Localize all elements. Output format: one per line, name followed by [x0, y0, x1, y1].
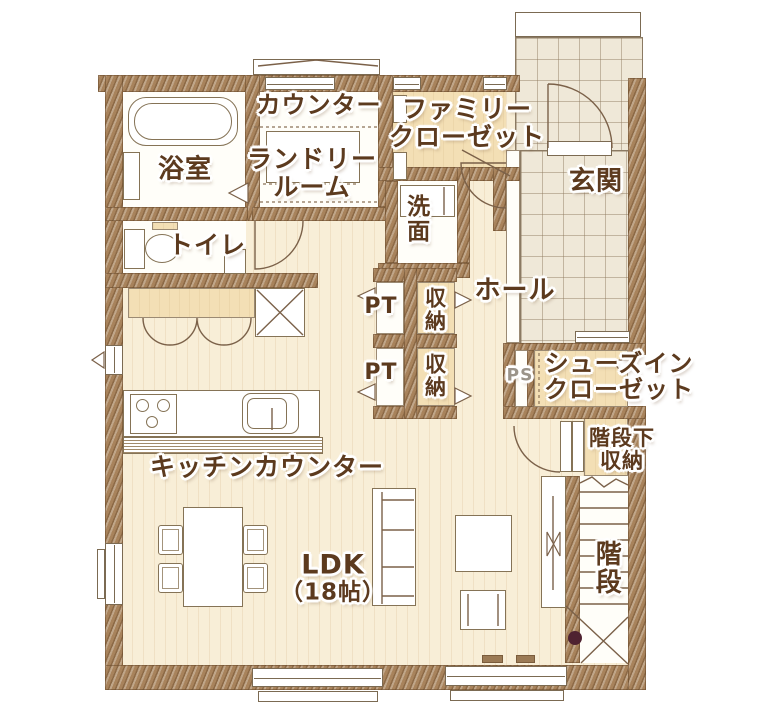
under-stairs-door-leaf-1 [560, 421, 572, 472]
window-outer-frame-top [253, 59, 380, 75]
room-label-ldk: LDK （18帖） [280, 551, 386, 606]
kitchen-cabinet-strip [128, 288, 255, 318]
window-left-ldk [105, 543, 123, 605]
wall-entrance-stub [493, 167, 506, 231]
under-stairs-line-2: 収納 [589, 450, 655, 473]
wall-storage-block-spine [404, 268, 417, 419]
bathtub-inner [134, 103, 232, 140]
wall-stairs-left [565, 476, 580, 663]
ldk-line-1: LDK [280, 551, 386, 581]
window-top-closet-left [393, 77, 421, 90]
room-label-family-closet: ファミリー クローゼット [389, 96, 545, 151]
ottoman [460, 590, 506, 630]
toilet-shelf [152, 222, 178, 230]
room-label-shoe-closet: シューズイン クローゼット [544, 351, 694, 404]
window-bottom-dining [252, 668, 383, 687]
shoe-closet-entrance-door [575, 331, 630, 343]
room-label-hall: ホール [474, 277, 555, 306]
room-label-entrance: 玄関 [569, 168, 623, 197]
room-label-bathroom: 浴室 [158, 156, 212, 185]
tv-board [541, 476, 566, 608]
refrigerator-space [255, 288, 305, 337]
family-closet-line-1: ファミリー [389, 96, 545, 124]
bath-counter [123, 152, 140, 200]
room-label-pipe-space: PS [507, 367, 534, 386]
wall-toilet-bottom [105, 273, 318, 288]
window-top-laundry [265, 77, 335, 90]
wall-right-upper [628, 78, 646, 345]
wall-washroom-left [385, 181, 398, 263]
room-label-pantry-lower: PT [364, 361, 397, 385]
laundry-line-2: ルーム [247, 173, 377, 201]
room-label-laundry: ランドリー ルーム [247, 146, 377, 201]
room-label-stairs: 階段 [592, 540, 621, 596]
room-label-pantry-upper: PT [364, 295, 397, 319]
room-label-counter: カウンター [257, 92, 382, 118]
window-bottom-dining-sill [258, 691, 378, 702]
kitchen-sink-inner [247, 398, 287, 429]
window-left-ldk-frame [97, 549, 105, 599]
stove-burner-2 [157, 399, 170, 412]
stove-burner-3 [146, 416, 158, 428]
room-label-kitchen-counter: キッチンカウンター [150, 453, 384, 481]
room-label-toilet: トイレ [168, 231, 246, 259]
porch-step [515, 12, 641, 37]
floor-vent-1 [482, 655, 503, 663]
family-closet-line-2: クローゼット [389, 123, 545, 151]
living-table [455, 515, 512, 572]
shoe-closet-line-2: クローゼット [544, 377, 694, 403]
window-left-kitchen [105, 345, 123, 375]
laundry-line-1: ランドリー [247, 146, 377, 174]
dining-chair-2 [158, 563, 183, 593]
wall-washroom-right [457, 167, 470, 263]
dining-chair-3 [243, 525, 268, 555]
shoe-closet-line-1: シューズイン [544, 351, 694, 377]
closet-shelf-lower [393, 152, 407, 180]
entrance-door-slab [547, 141, 612, 156]
dining-chair-4 [243, 563, 268, 593]
under-stairs-line-1: 階段下 [589, 427, 655, 450]
window-top-closet-right [483, 77, 507, 90]
kitchen-window-mark [92, 352, 104, 368]
room-label-storage-upper: 収納 [422, 287, 445, 333]
under-stairs-door-leaf-2 [572, 421, 584, 472]
window-bottom-living-sill [450, 690, 564, 701]
window-bottom-living [445, 666, 567, 686]
floor-vent-2 [516, 655, 535, 663]
wall-laundry-bottom [252, 207, 393, 221]
stove-burner-1 [136, 399, 149, 412]
room-label-storage-lower: 収納 [422, 353, 445, 399]
floor-plan: カウンター ファミリー クローゼット 浴室 ランドリー ルーム 洗面 玄関 トイ… [0, 0, 766, 720]
room-label-washroom: 洗面 [402, 194, 427, 244]
ldk-line-2: （18帖） [280, 580, 386, 605]
wall-bath-toilet [105, 207, 248, 221]
wall-shoe-closet-bottom [503, 406, 646, 419]
toilet-tank [124, 229, 145, 269]
dining-chair-1 [158, 525, 183, 555]
dining-table [183, 507, 243, 607]
room-label-under-stairs: 階段下 収納 [589, 427, 655, 473]
